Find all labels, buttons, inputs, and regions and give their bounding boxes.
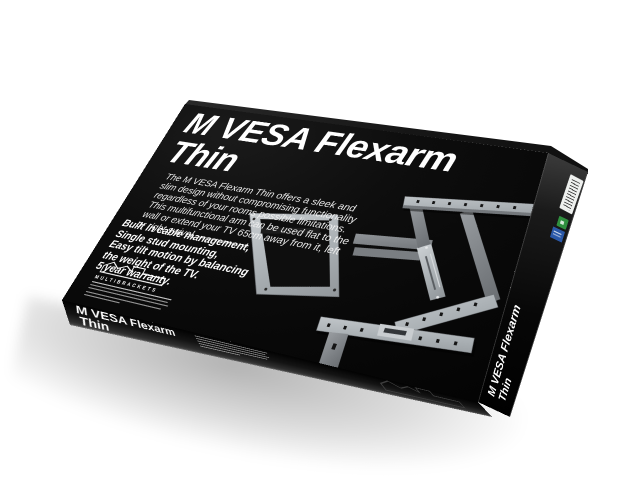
product-photo-scene: M VESA Flexarm Thin M VESA Flexarm Thin — [0, 0, 640, 480]
tilt-hinge — [400, 242, 461, 303]
